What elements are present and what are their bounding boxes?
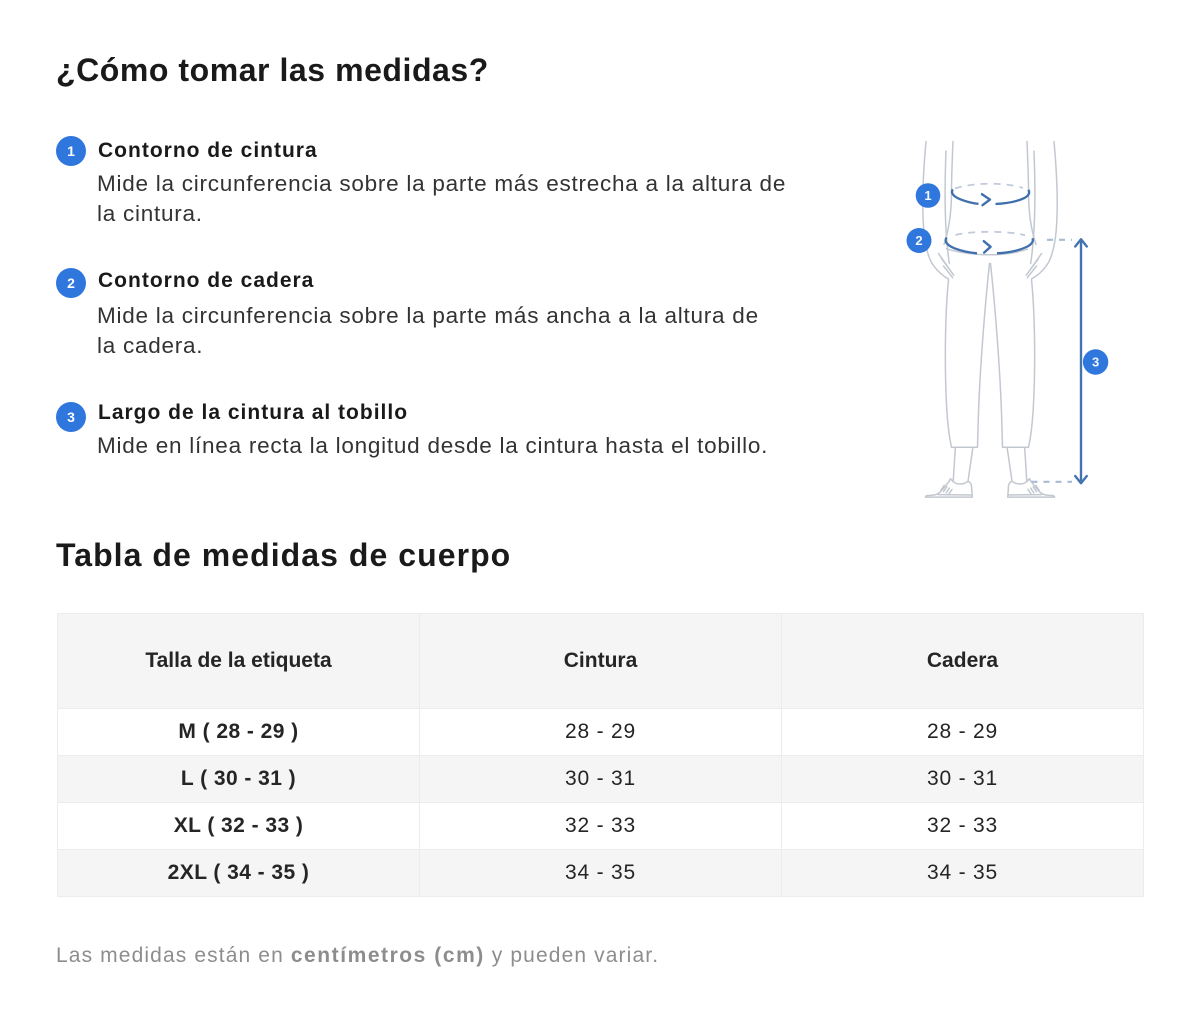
svg-text:3: 3 (1092, 355, 1099, 370)
svg-text:2: 2 (915, 233, 922, 248)
svg-text:1: 1 (924, 188, 931, 203)
